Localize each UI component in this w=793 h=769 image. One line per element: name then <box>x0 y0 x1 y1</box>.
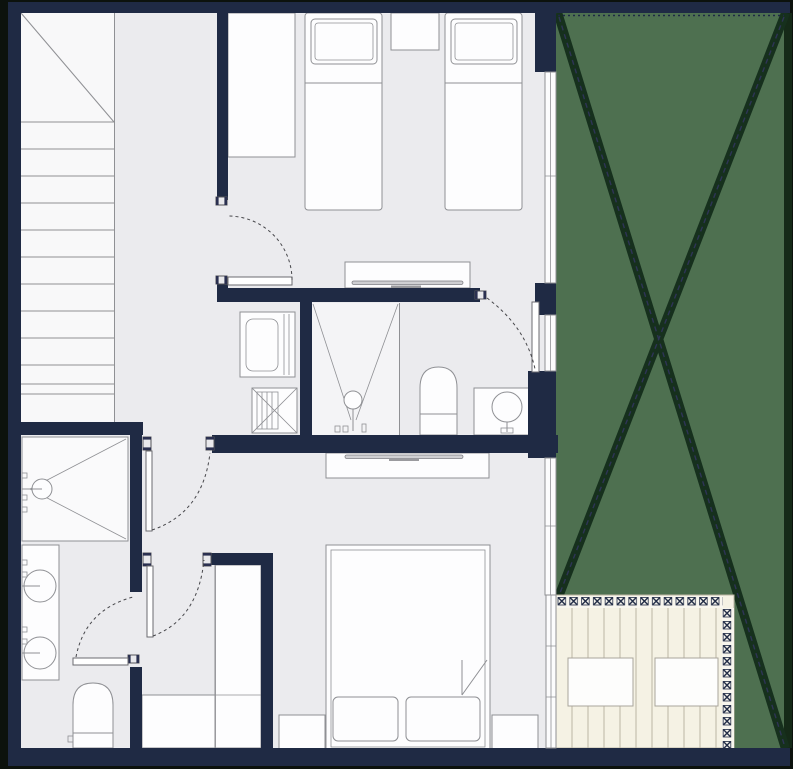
nightstand-right <box>492 715 538 752</box>
pillow <box>451 19 517 64</box>
tv-stand <box>391 286 421 288</box>
door-leaf <box>73 658 128 665</box>
stairwell <box>21 13 115 422</box>
wall-bath2-right-lower <box>130 667 142 748</box>
door-hinge <box>203 553 211 566</box>
stair-flight <box>21 13 114 422</box>
tv-screen <box>345 455 463 459</box>
sliding-door-deck <box>546 595 556 748</box>
wall-closet-top <box>205 553 273 565</box>
wall-mid-bottom <box>212 435 558 453</box>
door-hinge <box>206 437 214 450</box>
door-hinge <box>128 655 139 663</box>
window-2 <box>545 315 556 371</box>
single-bed-right <box>445 13 522 210</box>
double-bed <box>326 545 490 752</box>
wall-laundry-shower <box>300 302 312 435</box>
shower-drain <box>344 391 362 409</box>
floor-plan <box>0 0 793 769</box>
wall-top <box>8 2 556 13</box>
pier-right-low <box>528 371 556 458</box>
toilet-1 <box>420 367 457 435</box>
deck-mat-right <box>655 658 718 706</box>
door-hinge <box>216 197 227 205</box>
door-hinge <box>475 291 486 299</box>
toilet-2 <box>68 683 113 748</box>
door-leaf <box>147 566 153 637</box>
closet-floor-a <box>215 565 261 748</box>
pier-right-top <box>535 2 556 72</box>
tv-screen <box>352 281 463 285</box>
tv-dresser-master <box>326 453 489 478</box>
round-basin <box>492 392 522 422</box>
door-hinge <box>143 437 151 450</box>
terrace-deck <box>556 595 734 748</box>
pillow-right <box>406 697 480 741</box>
deck-mat-left <box>568 658 633 706</box>
door-hinge <box>216 276 227 284</box>
pillow-left <box>333 697 398 741</box>
shower-2 <box>22 437 128 541</box>
pillow <box>311 19 377 64</box>
wall-bath2-top <box>8 422 143 435</box>
heater-closet <box>252 388 297 433</box>
wall-hall-bedroom <box>217 13 228 200</box>
tv-dresser-top <box>345 262 470 288</box>
deck-railing-top <box>557 596 723 608</box>
closet-floor-b <box>142 695 215 748</box>
single-bed-left <box>305 13 382 210</box>
double-vanity <box>22 545 59 680</box>
deck-railing-right <box>722 608 734 748</box>
wall-mid-top <box>217 288 480 302</box>
door-hinge <box>143 553 151 566</box>
tv-stand <box>389 459 419 461</box>
nightstand-left <box>279 715 325 752</box>
window-3 <box>545 458 556 595</box>
wall-top-over-garden <box>556 2 790 13</box>
floor-plan-drawing <box>0 0 793 769</box>
wall-left <box>8 2 21 754</box>
wardrobe <box>228 13 295 157</box>
washing-machine <box>240 312 295 377</box>
window-1 <box>545 72 556 283</box>
nightstand-between-beds <box>391 13 439 50</box>
door-leaf <box>146 451 152 531</box>
door-leaf <box>228 277 292 285</box>
wall-bath2-right-upper <box>130 435 142 592</box>
wall-bottom <box>8 748 790 766</box>
shower-room-floor <box>312 303 399 435</box>
wall-closet-right <box>261 565 273 748</box>
garden-border <box>784 13 792 748</box>
